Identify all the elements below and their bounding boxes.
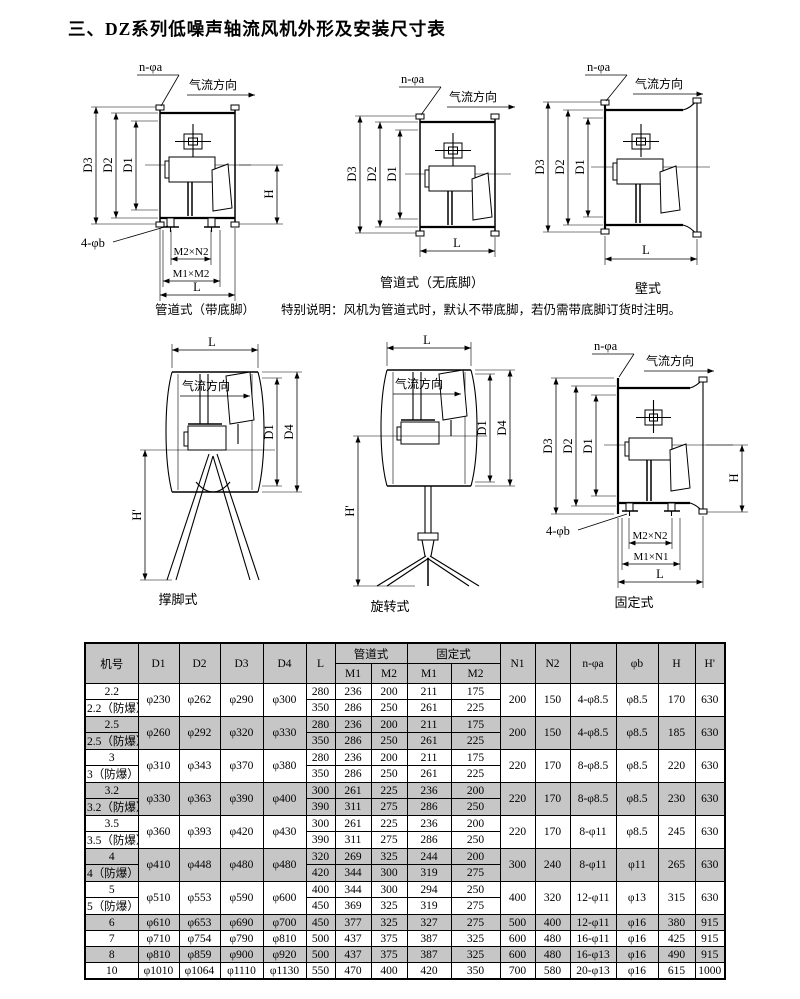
table-cell: 350 (451, 963, 500, 980)
table-cell: 4-φ8.5 (570, 684, 616, 717)
dim-label-4-phi-b: 4-φb (81, 236, 105, 250)
table-cell: 437 (335, 931, 371, 947)
header-cell: φb (616, 643, 658, 684)
table-cell: 20-φ13 (570, 963, 616, 980)
diameter-cell: φ553 (179, 882, 220, 915)
dim-label-d1: D1 (573, 159, 587, 174)
table-cell: 390 (306, 832, 335, 849)
model-cell: 2.2 (85, 684, 138, 700)
table-cell: φ8.5 (616, 816, 658, 849)
header-subcell: M2 (451, 664, 500, 684)
table-cell: 220 (500, 783, 535, 816)
table-cell: φ16 (616, 931, 658, 947)
dim-label-d3: D3 (345, 166, 359, 181)
header-fixed-group: 固定式 (407, 643, 500, 664)
table-cell: 630 (695, 783, 725, 816)
diameter-cell: φ260 (138, 717, 179, 750)
header-cell: D3 (220, 643, 263, 684)
diameter-cell: φ300 (263, 684, 306, 717)
diameter-cell: φ600 (263, 882, 306, 915)
table-cell: 450 (306, 915, 335, 931)
diameter-cell: φ290 (220, 684, 263, 717)
dim-label-d1: D1 (121, 157, 135, 172)
table-cell: 630 (695, 816, 725, 849)
table-cell: 8-φ11 (570, 849, 616, 882)
table-cell: 236 (407, 816, 451, 832)
diameter-cell: φ420 (220, 816, 263, 849)
table-row: 3φ310φ343φ370φ3802802362002111752201708-… (85, 750, 725, 766)
diameter-cell: φ790 (220, 931, 263, 947)
table-row: 10φ1010φ1064φ1110φ1130550470400420350700… (85, 963, 725, 980)
model-cell: 3（防爆） (85, 766, 138, 783)
dim-label-d2: D2 (553, 159, 567, 174)
table-cell: 286 (335, 733, 371, 750)
table-cell: 480 (535, 947, 570, 963)
table-cell: 490 (658, 947, 695, 963)
table-cell: 250 (451, 882, 500, 898)
table-row: 2.5φ260φ292φ320φ330280236200211175200150… (85, 717, 725, 733)
dim-label-d1: D1 (262, 424, 276, 439)
table-cell: 369 (335, 898, 371, 915)
table-cell: 261 (335, 783, 371, 799)
table-cell: 275 (451, 898, 500, 915)
table-cell: 420 (306, 865, 335, 882)
dim-label-h: H (262, 189, 276, 198)
table-cell: 325 (451, 931, 500, 947)
diameter-cell: φ810 (263, 931, 306, 947)
table-cell: 600 (500, 947, 535, 963)
table-cell: 400 (306, 882, 335, 898)
table-cell: 220 (500, 816, 535, 849)
table-cell: 327 (407, 915, 451, 931)
table-cell: 387 (407, 947, 451, 963)
table-cell: 236 (407, 783, 451, 799)
table-cell: φ16 (616, 963, 658, 980)
table-cell: 200 (500, 717, 535, 750)
table-cell: 175 (451, 750, 500, 766)
table-cell: 286 (335, 766, 371, 783)
model-cell: 3 (85, 750, 138, 766)
table-cell: 320 (535, 882, 570, 915)
header-model: 机号 (85, 643, 138, 684)
table-cell: 230 (658, 783, 695, 816)
table-row: 5φ510φ553φ590φ60040034430029425040032012… (85, 882, 725, 898)
diameter-cell: φ754 (179, 931, 220, 947)
table-cell: 200 (451, 849, 500, 865)
table-cell: 294 (407, 882, 451, 898)
flow-direction-label: 气流方向 (395, 376, 443, 391)
diameter-cell: φ230 (138, 684, 179, 717)
header-cell: D2 (179, 643, 220, 684)
table-cell: 269 (335, 849, 371, 865)
table-cell: 375 (371, 947, 407, 963)
special-note: 特别说明：风机为管道式时，默认不带底脚，若仍需带底脚订货时注明。 (281, 303, 681, 317)
diagram-duct-with-feet: D3 D2 D1 H n-φa 气流方向 4-φb M2×N2 M1×M2 L (55, 58, 320, 303)
table-cell: 286 (407, 799, 451, 816)
diameter-cell: φ1130 (263, 963, 306, 980)
table-row: 3.2φ330φ363φ390φ400300261225236200220170… (85, 783, 725, 799)
dim-label-l: L (423, 333, 431, 347)
table-cell: 236 (335, 717, 371, 733)
table-cell: 425 (658, 931, 695, 947)
diameter-cell: φ330 (138, 783, 179, 816)
table-cell: 185 (658, 717, 695, 750)
table-cell: 915 (695, 915, 725, 931)
header-duct-group: 管道式 (335, 643, 407, 664)
table-cell: 236 (335, 750, 371, 766)
dim-label-d2: D2 (101, 157, 115, 172)
dim-label-d2: D2 (365, 166, 379, 181)
table-cell: 630 (695, 750, 725, 783)
dim-label-n-phi-a: n-φa (594, 339, 618, 353)
diameter-cell: φ900 (220, 947, 263, 963)
fan-drawing (405, 114, 511, 236)
dim-label-m1m2: M1×M2 (173, 268, 210, 280)
table-row: 4φ410φ448φ480φ4803202693252442003002408-… (85, 849, 725, 865)
table-cell: 250 (371, 733, 407, 750)
diameter-cell: φ360 (138, 816, 179, 849)
table-cell: 175 (451, 717, 500, 733)
table-cell: 150 (535, 717, 570, 750)
table-row: 6φ610φ653φ690φ70045037732532727550040012… (85, 915, 725, 931)
diagram-wall-type: D3 D2 D1 n-φa 气流方向 L (515, 60, 765, 275)
table-cell: 275 (451, 865, 500, 882)
dim-label-n-phi-a: n-φa (139, 60, 163, 74)
table-cell: 200 (371, 717, 407, 733)
table-cell: 580 (535, 963, 570, 980)
table-cell: 225 (371, 816, 407, 832)
table-cell: 245 (658, 816, 695, 849)
table-cell: 220 (500, 750, 535, 783)
dim-label-m2n2: M2×N2 (633, 530, 668, 542)
diameter-cell: φ343 (179, 750, 220, 783)
dim-label-l: L (656, 567, 664, 581)
dim-label-m2n2: M2×N2 (174, 246, 209, 258)
flow-direction-label: 气流方向 (635, 76, 683, 91)
diameter-cell: φ448 (179, 849, 220, 882)
table-cell: 170 (535, 783, 570, 816)
model-cell: 8 (85, 947, 138, 963)
table-cell: 437 (335, 947, 371, 963)
table-cell: 286 (335, 700, 371, 717)
diameter-cell: φ710 (138, 931, 179, 947)
table-cell: 400 (500, 882, 535, 915)
caption-rotary-type: 旋转式 (370, 596, 409, 615)
model-cell: 2.5（防爆） (85, 733, 138, 750)
table-cell: 250 (451, 799, 500, 816)
table-cell: 280 (306, 750, 335, 766)
table-row: 8φ810φ859φ900φ92050043737538732560048016… (85, 947, 725, 963)
table-cell: 325 (451, 947, 500, 963)
table-cell: 12-φ11 (570, 882, 616, 915)
diameter-cell: φ480 (220, 849, 263, 882)
header-subcell: M1 (335, 664, 371, 684)
model-cell: 3.5 (85, 816, 138, 832)
diameter-cell: φ393 (179, 816, 220, 849)
table-cell: 377 (335, 915, 371, 931)
diagram-tripod-type: L 气流方向 H' D1 D4 (110, 332, 325, 587)
diameter-cell: φ370 (220, 750, 263, 783)
diameter-cell: φ410 (138, 849, 179, 882)
diameter-cell: φ330 (263, 717, 306, 750)
table-cell: 225 (451, 766, 500, 783)
dim-label-h-prime: H' (343, 505, 357, 516)
fan-drawing (353, 370, 487, 586)
diameter-cell: φ690 (220, 915, 263, 931)
table-cell: φ16 (616, 915, 658, 931)
table-cell: 280 (306, 684, 335, 700)
table-cell: 250 (371, 700, 407, 717)
diameter-cell: φ480 (263, 849, 306, 882)
table-cell: 261 (407, 700, 451, 717)
dim-label-h: H (727, 473, 741, 482)
table-cell: φ8.5 (616, 684, 658, 717)
table-cell: 300 (306, 816, 335, 832)
fan-drawing (604, 377, 733, 516)
table-cell: 450 (306, 898, 335, 915)
table-cell: φ8.5 (616, 783, 658, 816)
diameter-cell: φ1010 (138, 963, 179, 980)
table-cell: 500 (500, 915, 535, 931)
table-cell: 420 (407, 963, 451, 980)
table-cell: φ8.5 (616, 750, 658, 783)
table-cell: 319 (407, 898, 451, 915)
table-cell: 211 (407, 717, 451, 733)
table-cell: 311 (335, 832, 371, 849)
table-cell: 300 (500, 849, 535, 882)
model-cell: 5（防爆） (85, 898, 138, 915)
table-cell: 630 (695, 849, 725, 882)
header-cell: D4 (263, 643, 306, 684)
table-cell: 325 (371, 898, 407, 915)
table-cell: 261 (407, 766, 451, 783)
table-cell: 325 (371, 849, 407, 865)
model-cell: 6 (85, 915, 138, 931)
model-cell: 4（防爆） (85, 865, 138, 882)
fan-drawing (145, 105, 251, 232)
table-cell: 4-φ8.5 (570, 717, 616, 750)
diagram-fixed-type: D3 D2 D1 H n-φa 气流方向 4-φb M2×N2 M1×N1 L (518, 338, 758, 590)
table-cell: 470 (335, 963, 371, 980)
table-cell: 244 (407, 849, 451, 865)
table-row: 7φ710φ754φ790φ81050043737538732560048016… (85, 931, 725, 947)
table-cell: 8-φ11 (570, 816, 616, 849)
table-cell: 300 (306, 783, 335, 799)
table-cell: 630 (695, 684, 725, 717)
table-cell: φ11 (616, 849, 658, 882)
diameter-cell: φ1064 (179, 963, 220, 980)
table-cell: 170 (658, 684, 695, 717)
dim-label-d1: D1 (475, 420, 489, 435)
table-row: 3.5φ360φ393φ420φ430300261225236200220170… (85, 816, 725, 832)
table-cell: 275 (371, 832, 407, 849)
model-cell: 3.2 (85, 783, 138, 799)
table-cell: 380 (658, 915, 695, 931)
table-cell: 200 (371, 750, 407, 766)
diameter-cell: φ390 (220, 783, 263, 816)
table-cell: 8-φ8.5 (570, 750, 616, 783)
table-cell: 261 (335, 816, 371, 832)
fan-drawing (591, 98, 710, 237)
dim-label-n-phi-a: n-φa (587, 60, 611, 74)
dim-label-l: L (193, 280, 201, 294)
header-cell: N2 (535, 643, 570, 684)
table-cell: 200 (371, 684, 407, 700)
table-cell: 200 (451, 783, 500, 799)
table-cell: 220 (658, 750, 695, 783)
dim-label-l: L (453, 236, 461, 250)
table-cell: 150 (535, 684, 570, 717)
diameter-cell: φ363 (179, 783, 220, 816)
table-cell: 600 (500, 931, 535, 947)
caption-tripod-type: 撑脚式 (158, 589, 197, 608)
header-cell: H (658, 643, 695, 684)
caption-wall-type: 壁式 (635, 278, 661, 297)
table-header: 机号D1D2D3D4L管道式固定式N1N2n-φaφbHH'M1M2M1M2 (85, 643, 725, 684)
diameter-cell: φ700 (263, 915, 306, 931)
table-cell: 275 (371, 799, 407, 816)
table-cell: 344 (335, 865, 371, 882)
table-cell: 250 (451, 832, 500, 849)
table-cell: φ13 (616, 882, 658, 915)
table-cell: 319 (407, 865, 451, 882)
dimension-table: 机号D1D2D3D4L管道式固定式N1N2n-φaφbHH'M1M2M1M2 2… (84, 642, 726, 980)
table-cell: 400 (371, 963, 407, 980)
diameter-cell: φ320 (220, 717, 263, 750)
table-cell: 16-φ11 (570, 931, 616, 947)
dim-label-d3: D3 (541, 438, 555, 453)
dim-label-d1: D1 (581, 438, 595, 453)
dim-label-l: L (208, 335, 216, 349)
flow-direction-label: 气流方向 (646, 353, 694, 368)
dim-label-d4: D4 (495, 420, 509, 436)
table-cell: 275 (451, 915, 500, 931)
model-cell: 2.2（防爆） (85, 700, 138, 717)
dim-label-4-phi-b: 4-φb (546, 524, 570, 538)
table-cell: 350 (306, 733, 335, 750)
table-cell: 615 (658, 963, 695, 980)
table-cell: 286 (407, 832, 451, 849)
table-cell: 700 (500, 963, 535, 980)
diameter-cell: φ262 (179, 684, 220, 717)
diameter-cell: φ610 (138, 915, 179, 931)
dim-label-l: L (642, 243, 650, 257)
document-page: 三、DZ系列低噪声轴流风机外形及安装尺寸表 (0, 0, 800, 999)
table-cell: 500 (306, 947, 335, 963)
table-cell: 240 (535, 849, 570, 882)
header-cell: N1 (500, 643, 535, 684)
diameter-cell: φ1110 (220, 963, 263, 980)
table-cell: 300 (371, 882, 407, 898)
caption-fixed-type: 固定式 (614, 592, 653, 611)
model-cell: 5 (85, 882, 138, 898)
table-cell: 915 (695, 947, 725, 963)
table-cell: 315 (658, 882, 695, 915)
table-cell: 350 (306, 766, 335, 783)
diameter-cell: φ430 (263, 816, 306, 849)
table-cell: 236 (335, 684, 371, 700)
diameter-cell: φ292 (179, 717, 220, 750)
table-cell: 265 (658, 849, 695, 882)
dim-label-m1n1: M1×N1 (634, 551, 669, 563)
flow-direction-label: 气流方向 (189, 77, 237, 92)
table-cell: 350 (306, 700, 335, 717)
table-cell: 325 (371, 915, 407, 931)
table-cell: 225 (451, 733, 500, 750)
table-cell: 175 (451, 684, 500, 700)
page-title: 三、DZ系列低噪声轴流风机外形及安装尺寸表 (68, 16, 446, 41)
table-cell: 320 (306, 849, 335, 865)
model-cell: 3.2（防爆） (85, 799, 138, 816)
table-cell: 16-φ13 (570, 947, 616, 963)
table-cell: 211 (407, 750, 451, 766)
table-cell: 390 (306, 799, 335, 816)
diameter-cell: φ310 (138, 750, 179, 783)
dim-label-d2: D2 (561, 438, 575, 453)
caption-duct-no-feet: 管道式（无底脚） (380, 272, 484, 291)
table-cell: 300 (371, 865, 407, 882)
dim-label-n-phi-a: n-φa (401, 72, 425, 86)
diameter-cell: φ510 (138, 882, 179, 915)
header-subcell: M2 (371, 664, 407, 684)
diameter-cell: φ653 (179, 915, 220, 931)
model-cell: 7 (85, 931, 138, 947)
table-cell: 387 (407, 931, 451, 947)
diagram-rotary-type: L 气流方向 H' D1 D4 (325, 328, 540, 593)
note-line: 管道式（带底脚）特别说明：风机为管道式时，默认不带底脚，若仍需带底脚订货时注明。 (155, 299, 681, 318)
fan-drawing (140, 372, 275, 580)
table-cell: 170 (535, 750, 570, 783)
table-cell: 200 (451, 816, 500, 832)
table-cell: 12-φ11 (570, 915, 616, 931)
table-cell: 200 (500, 684, 535, 717)
table-cell: 480 (535, 931, 570, 947)
table-cell: φ8.5 (616, 717, 658, 750)
caption-duct-with-feet: 管道式（带底脚） (155, 303, 255, 317)
header-cell: D1 (138, 643, 179, 684)
table-cell: 211 (407, 684, 451, 700)
diameter-cell: φ859 (179, 947, 220, 963)
table-cell: 311 (335, 799, 371, 816)
diameter-cell: φ810 (138, 947, 179, 963)
model-cell: 3.5（防爆） (85, 832, 138, 849)
table-cell: 375 (371, 931, 407, 947)
table-cell: 170 (535, 816, 570, 849)
model-cell: 10 (85, 963, 138, 980)
model-cell: 2.5 (85, 717, 138, 733)
table-cell: 630 (695, 717, 725, 750)
table-cell: 225 (371, 783, 407, 799)
header-cell: L (306, 643, 335, 684)
table-cell: 915 (695, 931, 725, 947)
table-cell: φ16 (616, 947, 658, 963)
table-cell: 250 (371, 766, 407, 783)
table-body: 2.2φ230φ262φ290φ300280236200211175200150… (85, 684, 725, 980)
diameter-cell: φ590 (220, 882, 263, 915)
diameter-cell: φ380 (263, 750, 306, 783)
table-cell: 630 (695, 882, 725, 915)
dim-label-d3: D3 (81, 157, 95, 172)
flow-direction-label: 气流方向 (449, 89, 497, 104)
table-cell: 1000 (695, 963, 725, 980)
diameter-cell: φ400 (263, 783, 306, 816)
table-cell: 500 (306, 931, 335, 947)
table-cell: 225 (451, 700, 500, 717)
table-cell: 400 (535, 915, 570, 931)
dim-label-h-prime: H' (130, 509, 144, 520)
table-cell: 280 (306, 717, 335, 733)
header-cell: n-φa (570, 643, 616, 684)
